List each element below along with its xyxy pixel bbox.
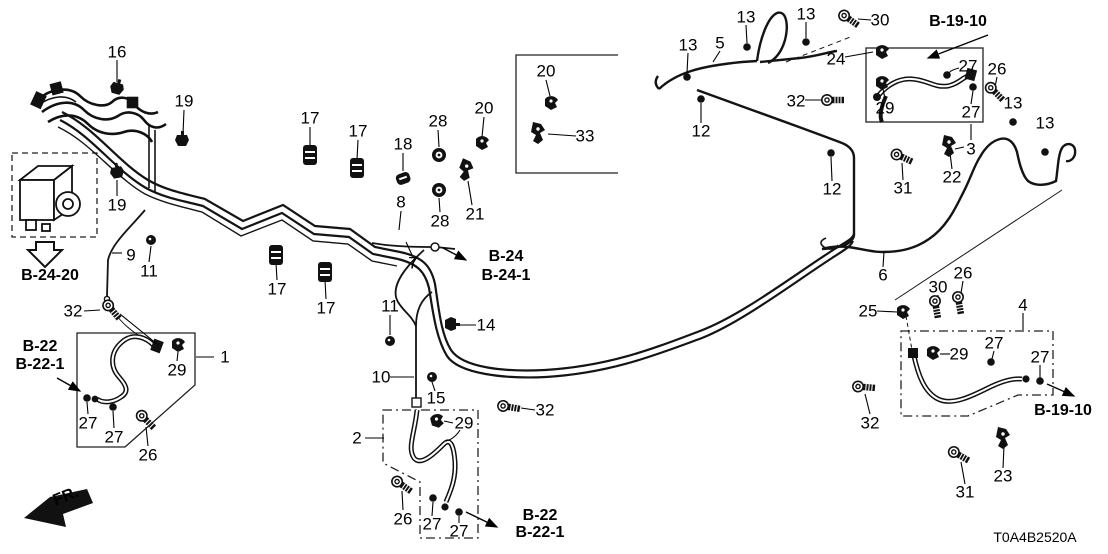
part-number-label[interactable]: 17 [317,300,336,317]
part-number-label[interactable]: 32 [64,303,83,320]
bolt-32c-icon [822,95,844,105]
part-number-label[interactable]: 27 [423,516,442,533]
part-number-label[interactable]: 29 [455,415,474,432]
reference-code-label[interactable]: B-22 [523,508,558,524]
brake-hose-1 [92,337,164,403]
part-number-label[interactable]: 17 [268,281,287,298]
part-number-label[interactable]: 27 [450,523,469,540]
part-number-label[interactable]: 30 [871,12,890,29]
grommet-28b-icon [432,183,446,197]
rubber-mount-17d-icon [318,262,332,282]
part-number-label[interactable]: 19 [108,197,127,214]
part-number-label[interactable]: 26 [139,447,158,464]
part-number-label[interactable]: 19 [175,93,194,110]
brake-pipe-bundle [58,112,854,377]
bolt-32d-icon [852,381,875,393]
part-number-label[interactable]: 13 [1036,115,1055,132]
stud-27f-icon [969,83,977,91]
fastener-icons-layer [83,8,1049,515]
clip-13c-icon [802,38,810,46]
part-number-label[interactable]: 31 [956,484,975,501]
reference-code-label[interactable]: B-22 [23,339,58,355]
part-number-label[interactable]: 26 [394,511,413,528]
part-number-label[interactable]: 10 [372,369,391,386]
part-number-label[interactable]: 29 [168,362,187,379]
clip-14-icon [445,317,460,331]
reference-code-label[interactable]: B-24-1 [482,268,531,284]
bracket-21-icon [457,158,475,182]
part-number-label[interactable]: 27 [1031,349,1050,366]
part-number-label[interactable]: 7 [408,255,417,272]
pipe-harness-cluster [32,83,166,142]
part-number-label[interactable]: 18 [394,136,413,153]
part-number-label[interactable]: 6 [878,267,887,284]
bracket-23-icon [996,427,1010,449]
reference-code-label[interactable]: B-24-20 [21,268,79,284]
part-number-label[interactable]: 14 [477,317,496,334]
down-arrow-to-b2420 [28,242,62,267]
brake-pipe-12 [697,90,854,236]
part-number-label[interactable]: 23 [994,468,1013,485]
leader-lines [84,19,1040,523]
clip-13e-icon [1041,148,1049,156]
part-number-label[interactable]: 17 [349,123,368,140]
part-number-label[interactable]: 12 [823,181,842,198]
part-number-label[interactable]: 29 [950,346,969,363]
nut-11b-icon [385,336,395,346]
rubber-mount-17c-icon [269,245,283,265]
grommet-28-icon [432,148,446,162]
rubber-mount-17-icon [350,158,364,178]
part-number-label[interactable]: 13 [1004,95,1023,112]
clip-12b-icon [827,149,835,157]
diagram-code: T0A4B2520A [993,529,1076,545]
bracket-22-icon [942,135,956,157]
part-number-label[interactable]: 8 [396,194,405,211]
part-number-label[interactable]: 11 [140,263,158,280]
bracket-33-icon [531,122,545,144]
part-number-label[interactable]: 16 [108,44,127,61]
reference-code-label[interactable]: B-22-1 [16,357,65,373]
nut-15-icon [427,372,437,382]
rubber-mount-18-icon [395,171,412,186]
part-number-label[interactable]: 27 [79,415,98,432]
clamp-29d-icon [927,346,940,360]
part-number-label[interactable]: 3 [966,141,975,158]
bolt-32a-icon [101,298,123,322]
part-number-label[interactable]: 27 [985,335,1004,352]
part-number-label[interactable]: 12 [692,123,711,140]
part-number-label[interactable]: 20 [537,63,556,80]
detail-boxes [12,48,1053,538]
reference-code-label[interactable]: B-22-1 [516,525,565,541]
part-number-label[interactable]: 30 [929,279,948,296]
part-number-label[interactable]: 9 [126,247,135,264]
reference-code-label[interactable]: B-19-10 [1034,403,1092,419]
part-number-label[interactable]: 29 [876,100,895,117]
clamp-20-icon [476,136,489,150]
part-number-label[interactable]: 28 [431,213,450,230]
part-number-label[interactable]: 31 [894,180,913,197]
clip-13d-icon [1009,118,1017,126]
washer-27b-icon [109,403,117,411]
part-number-label[interactable]: 1 [220,349,229,366]
part-number-label[interactable]: 32 [787,93,806,110]
bolt-32b-icon [497,400,521,414]
part-number-label[interactable]: 32 [861,415,880,432]
part-number-label[interactable]: 13 [737,9,756,26]
part-number-label[interactable]: 26 [954,265,973,282]
part-number-label[interactable]: 15 [427,390,446,407]
washer-27-icon [83,394,91,402]
part-number-label[interactable]: 21 [466,206,485,223]
clamp-29b-icon [429,413,445,430]
part-number-label[interactable]: 24 [827,51,846,68]
part-number-label[interactable]: 26 [988,61,1007,78]
part-number-label[interactable]: 27 [105,429,124,446]
nut-11-icon [146,235,156,245]
part-number-label[interactable]: 13 [797,6,816,23]
part-number-label[interactable]: 13 [679,37,698,54]
washer-27g-icon [987,358,995,366]
reference-arrows [57,35,1074,527]
rubber-mount-17-icon [303,145,317,165]
clamp-20b-icon [545,96,558,110]
part-number-label[interactable]: 33 [576,128,595,145]
bolt-26d-icon [952,291,966,315]
part-number-label[interactable]: 2 [352,430,361,447]
part-number-label[interactable]: 25 [859,303,878,320]
part-number-label[interactable]: 27 [962,104,981,121]
part-number-label[interactable]: 27 [959,58,978,75]
stud-27e-icon [943,71,951,79]
connector-25-icon [897,305,910,319]
clip-12a-icon [697,95,705,103]
washer-27d-icon [455,508,463,516]
bolt-30b-icon [929,295,943,319]
reference-code-label[interactable]: B-24 [489,249,524,265]
association-line-25 [906,316,912,350]
part-number-label[interactable]: 22 [943,169,962,186]
reference-code-label[interactable]: B-19-10 [929,14,987,30]
abs-modulator-drawing [20,166,80,231]
clip-19b-icon [109,162,125,179]
clip-13a-icon [683,73,691,81]
bolt-30a-icon [837,8,861,29]
parts-diagram: 1619191717182820203328218717179113212927… [0,0,1108,554]
part-number-label[interactable]: 4 [1018,297,1027,314]
bolt-31b-icon [947,445,971,465]
brake-hose-4 [908,348,1030,401]
part-number-label[interactable]: 32 [536,402,555,419]
clip-13b-icon [743,43,751,51]
part-number-label[interactable]: 20 [475,100,494,117]
clamp-24-icon [876,45,889,59]
washer-27c-icon [429,494,437,502]
part-number-label[interactable]: 5 [715,35,724,52]
clamp-29a-icon [172,338,185,352]
washer-27h-icon [1036,377,1044,385]
clip-19-icon [175,131,189,146]
part-number-label[interactable]: 17 [301,110,320,127]
part-number-label[interactable]: 28 [429,113,448,130]
part-number-label[interactable]: 11 [381,298,399,315]
